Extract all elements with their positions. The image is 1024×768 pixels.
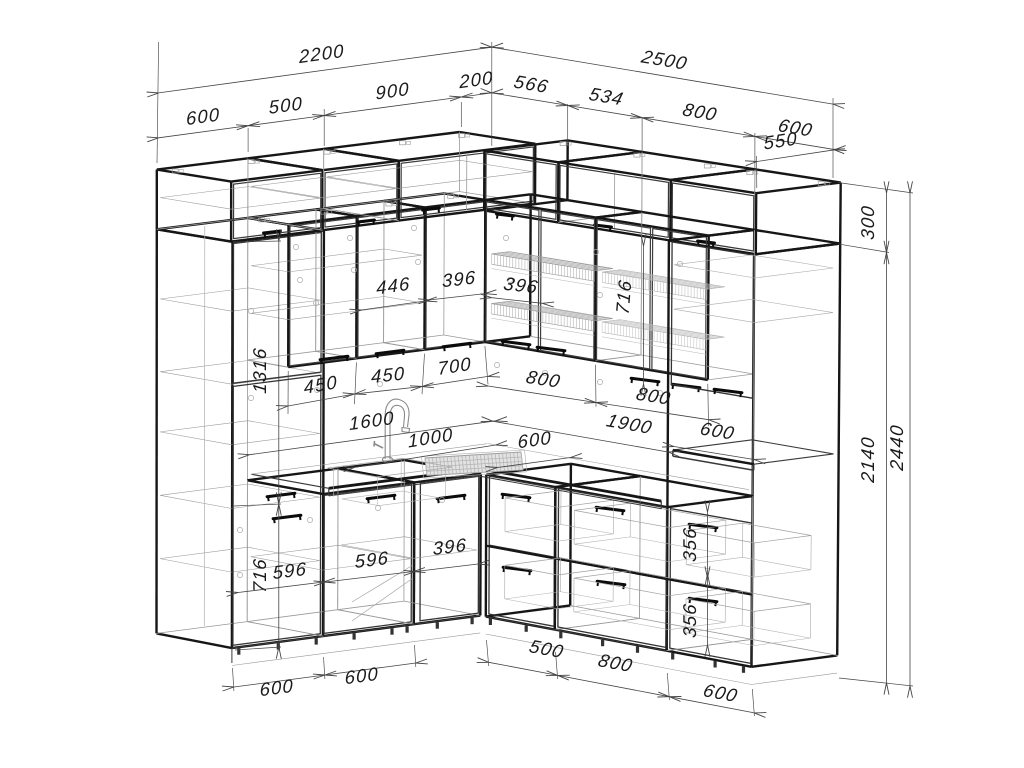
- svg-text:356: 356: [679, 602, 700, 639]
- svg-text:396: 396: [442, 266, 476, 291]
- svg-text:596: 596: [273, 558, 308, 583]
- svg-text:600: 600: [259, 675, 294, 701]
- svg-text:2140: 2140: [857, 435, 878, 484]
- svg-text:716: 716: [612, 278, 636, 316]
- svg-text:2440: 2440: [886, 423, 907, 472]
- svg-text:716: 716: [249, 557, 270, 594]
- svg-text:600: 600: [344, 663, 379, 689]
- svg-text:396: 396: [433, 534, 468, 559]
- svg-text:1316: 1316: [249, 346, 270, 394]
- svg-text:396: 396: [502, 273, 541, 297]
- svg-text:356: 356: [679, 526, 700, 563]
- svg-text:596: 596: [355, 547, 390, 572]
- svg-text:450: 450: [371, 362, 405, 387]
- svg-text:300: 300: [857, 204, 878, 241]
